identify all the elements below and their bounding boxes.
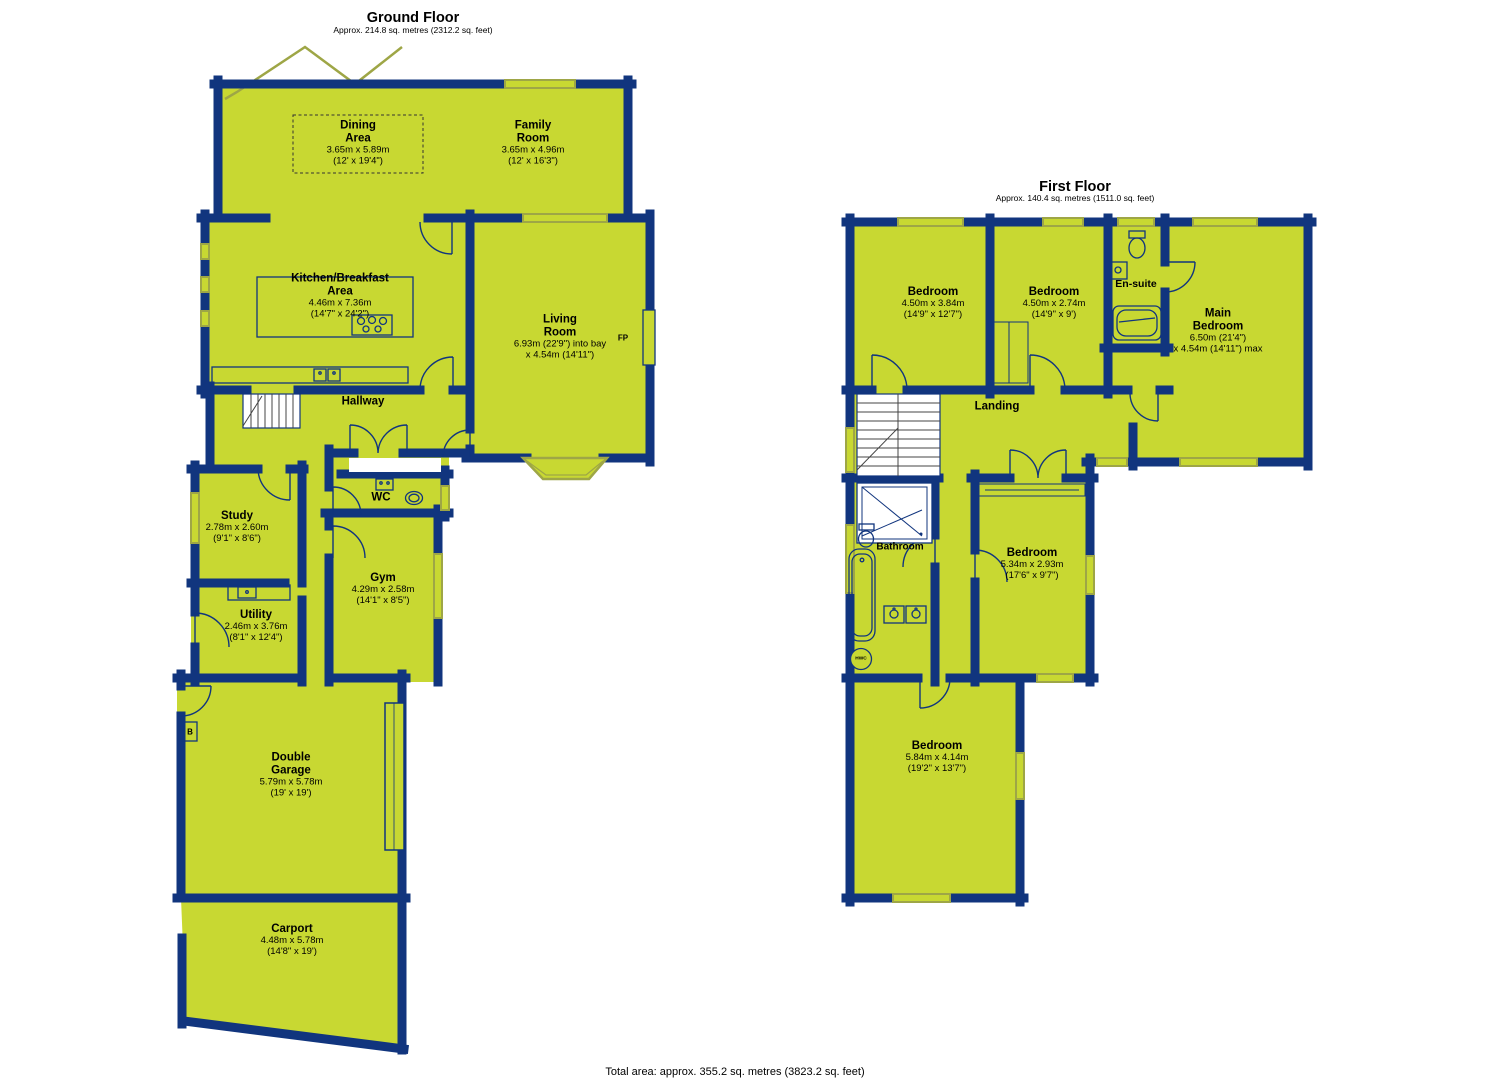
- bedroom2-imperial: (14'9" x 9'): [1023, 309, 1086, 320]
- total-area-footer: Total area: approx. 355.2 sq. metres (38…: [605, 1066, 864, 1078]
- kitchen-imperial: (14'7" x 24'2"): [291, 309, 389, 320]
- family-imperial: (12' x 16'3"): [502, 156, 565, 167]
- study-imperial: (9'1" x 8'6"): [206, 533, 269, 544]
- ground-floor-subtitle: Approx. 214.8 sq. metres (2312.2 sq. fee…: [333, 26, 492, 36]
- ground-floor-title-text: Ground Floor: [367, 10, 460, 26]
- room-label-bathroom: Bathroom: [876, 541, 923, 552]
- room-label-utility: Utility 2.46m x 3.76m (8'1" x 12'4"): [225, 609, 288, 643]
- dining-imperial: (12' x 19'4"): [327, 156, 390, 167]
- garage-imperial: (19' x 19'): [260, 788, 323, 799]
- utility-imperial: (8'1" x 12'4"): [225, 632, 288, 643]
- bedroom1-imperial: (14'9" x 12'7"): [902, 309, 965, 320]
- first-floor-subtitle-text: Approx. 140.4 sq. metres (1511.0 sq. fee…: [996, 194, 1155, 204]
- room-label-garage: Double Garage 5.79m x 5.78m (19' x 19'): [260, 751, 323, 798]
- bay-window-icon: [523, 458, 607, 479]
- room-label-bedroom1: Bedroom 4.50m x 3.84m (14'9" x 12'7"): [902, 286, 965, 320]
- ground-floor-subtitle-text: Approx. 214.8 sq. metres (2312.2 sq. fee…: [333, 26, 492, 36]
- first-floor-subtitle: Approx. 140.4 sq. metres (1511.0 sq. fee…: [996, 194, 1155, 204]
- ground-floor-fill: [177, 80, 654, 1050]
- fireplace-icon: [643, 310, 655, 365]
- room-label-bedroom2: Bedroom 4.50m x 2.74m (14'9" x 9'): [1023, 286, 1086, 320]
- carport-imperial: (14'8" x 19'): [261, 946, 324, 957]
- boiler-label: B: [187, 727, 193, 736]
- room-label-ensuite: En-suite: [1115, 279, 1156, 291]
- bathroom-name: Bathroom: [876, 541, 923, 552]
- garage-name: Double Garage: [260, 751, 323, 777]
- ensuite-name: En-suite: [1115, 279, 1156, 291]
- floorplan-page: Ground Floor Approx. 214.8 sq. metres (2…: [0, 0, 1485, 1080]
- room-label-carport: Carport 4.48m x 5.78m (14'8" x 19'): [261, 923, 324, 957]
- dining-name: Dining Area: [327, 119, 390, 145]
- bedroom3-imperial: (17'6" x 9'7"): [1001, 570, 1064, 581]
- room-label-wc: WC: [371, 492, 390, 505]
- family-name: Family Room: [502, 119, 565, 145]
- room-label-gym: Gym 4.29m x 2.58m (14'1" x 8'5"): [352, 572, 415, 606]
- landing-name: Landing: [975, 401, 1020, 414]
- room-label-main-bedroom: Main Bedroom 6.50m (21'4") x 4.54m (14'1…: [1174, 307, 1263, 354]
- room-label-bedroom4: Bedroom 5.84m x 4.14m (19'2" x 13'7"): [906, 740, 969, 774]
- living-imperial: x 4.54m (14'11"): [514, 350, 606, 361]
- wc-name: WC: [371, 492, 390, 505]
- gym-imperial: (14'1" x 8'5"): [352, 595, 415, 606]
- total-area-text: Total area: approx. 355.2 sq. metres (38…: [605, 1066, 864, 1078]
- room-label-study: Study 2.78m x 2.60m (9'1" x 8'6"): [206, 510, 269, 544]
- room-label-family: Family Room 3.65m x 4.96m (12' x 16'3"): [502, 119, 565, 166]
- main-bedroom-name: Main Bedroom: [1174, 307, 1263, 333]
- room-label-dining: Dining Area 3.65m x 5.89m (12' x 19'4"): [327, 119, 390, 166]
- first-floor-stairs: [857, 394, 940, 476]
- room-label-living: Living Room 6.93m (22'9") into bay x 4.5…: [514, 313, 606, 360]
- main-bedroom-imperial: x 4.54m (14'11") max: [1174, 344, 1263, 355]
- front-recess: [349, 458, 441, 472]
- garage-door-icon: [385, 703, 404, 850]
- fireplace-label: FP: [618, 333, 628, 342]
- hallway-name: Hallway: [342, 396, 385, 409]
- ground-floor-title: Ground Floor: [367, 10, 460, 26]
- room-label-landing: Landing: [975, 401, 1020, 414]
- ground-stairs: [243, 394, 300, 428]
- room-label-kitchen: Kitchen/Breakfast Area 4.46m x 7.36m (14…: [291, 272, 389, 319]
- bedroom4-imperial: (19'2" x 13'7"): [906, 763, 969, 774]
- living-name: Living Room: [514, 313, 606, 339]
- room-label-bedroom3: Bedroom 5.34m x 2.93m (17'6" x 9'7"): [1001, 547, 1064, 581]
- room-label-hallway: Hallway: [342, 396, 385, 409]
- shower-icon: [857, 483, 932, 543]
- hot-water-cylinder-label: HWC: [855, 656, 866, 661]
- kitchen-name: Kitchen/Breakfast Area: [291, 272, 389, 298]
